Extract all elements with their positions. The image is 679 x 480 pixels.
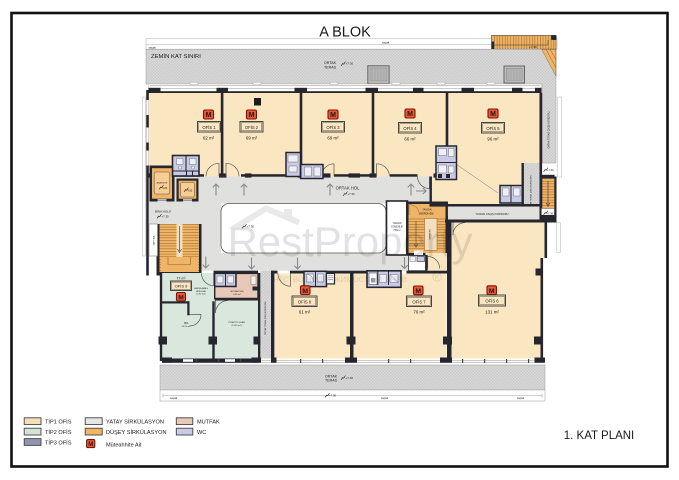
svg-text:MUTFAK: MUTFAK xyxy=(197,420,220,426)
svg-text:R: R xyxy=(435,275,440,282)
svg-text:OFİS 1: OFİS 1 xyxy=(202,125,216,130)
svg-text:+7.30: +7.30 xyxy=(346,62,354,66)
svg-text:66 m²: 66 m² xyxy=(404,137,416,142)
svg-text:M: M xyxy=(206,112,212,119)
svg-text:TERAS: TERAS xyxy=(325,379,338,383)
svg-text:OFİS 3: OFİS 3 xyxy=(326,125,340,130)
svg-text:ŞAFT BŞL.: ŞAFT BŞL. xyxy=(153,234,156,245)
svg-text:ORTAK TERAS ÇIKIŞ KORİDORU: ORTAK TERAS ÇIKIŞ KORİDORU xyxy=(530,175,533,209)
svg-text:ORTAK TERAS ÇIKIŞ KORİDORU: ORTAK TERAS ÇIKIŞ KORİDORU xyxy=(548,111,551,148)
svg-text:saçak: saçak xyxy=(170,396,178,400)
svg-text:ASANSÖR: ASANSÖR xyxy=(157,182,168,185)
svg-text:+7.30: +7.30 xyxy=(329,394,337,398)
svg-text:M: M xyxy=(302,288,308,295)
svg-text:M: M xyxy=(407,111,413,118)
svg-text:KARŞILAMA &: KARŞILAMA & xyxy=(194,287,208,290)
svg-text:62 m²: 62 m² xyxy=(203,136,215,141)
svg-text:+7.30: +7.30 xyxy=(547,211,554,215)
svg-text:MUTFAK NİŞİ: MUTFAK NİŞİ xyxy=(230,290,243,293)
svg-text:+7.30: +7.30 xyxy=(346,376,354,380)
svg-text:saçak: saçak xyxy=(381,396,389,400)
svg-text:+7.30: +7.30 xyxy=(348,192,356,196)
svg-text:BEKLEME: BEKLEME xyxy=(196,291,206,293)
svg-text:(13.09 m2): (13.09 m2) xyxy=(231,325,241,327)
svg-text:+7.30: +7.30 xyxy=(162,215,170,219)
svg-text:1. KAT PLANI: 1. KAT PLANI xyxy=(564,430,635,442)
svg-text:M: M xyxy=(489,288,495,295)
svg-text:+7.30: +7.30 xyxy=(529,45,537,49)
svg-text:OFİS 4: OFİS 4 xyxy=(403,126,417,131)
svg-text:(5.60 m2): (5.60 m2) xyxy=(197,294,206,296)
svg-text:24.23 m2: 24.23 m2 xyxy=(182,326,192,328)
svg-text:M: M xyxy=(490,111,496,118)
svg-text:96 m²: 96 m² xyxy=(487,137,499,142)
svg-text:OFİS 7: OFİS 7 xyxy=(412,299,426,304)
svg-text:SPA: SPA xyxy=(184,322,189,325)
svg-text:TİP1 OFİS: TİP1 OFİS xyxy=(45,419,72,426)
svg-text:WC: WC xyxy=(197,430,206,436)
svg-text:MERDİVENİ: MERDİVENİ xyxy=(420,213,434,216)
svg-text:TERAS: TERAS xyxy=(324,65,337,69)
svg-text:TİP3 OFİS: TİP3 OFİS xyxy=(45,439,72,446)
svg-text:OFİS 6: OFİS 6 xyxy=(485,299,499,304)
svg-text:4.80: 4.80 xyxy=(188,189,193,192)
svg-text:saçak: saçak xyxy=(382,41,390,45)
svg-text:+7.30: +7.30 xyxy=(547,168,554,172)
svg-text:OFİS 5: OFİS 5 xyxy=(486,126,500,131)
svg-text:M: M xyxy=(88,442,93,448)
svg-text:OFİS 9: OFİS 9 xyxy=(175,284,188,289)
svg-text:4.80: 4.80 xyxy=(163,187,168,190)
svg-text:OFİS 2: OFİS 2 xyxy=(245,125,259,130)
svg-text:ORTAK TERAS ÇIKIŞ KORİDORU: ORTAK TERAS ÇIKIŞ KORİDORU xyxy=(264,301,267,335)
svg-text:saçak: saçak xyxy=(149,45,157,49)
svg-text:61 m²: 61 m² xyxy=(299,310,311,315)
svg-text:ORTAK HOL: ORTAK HOL xyxy=(336,186,360,191)
svg-text:76 m²: 76 m² xyxy=(413,310,425,315)
svg-text:YÖNETİCİ ODASI: YÖNETİCİ ODASI xyxy=(228,321,245,324)
svg-text:4.39 m2: 4.39 m2 xyxy=(233,294,241,296)
svg-text:131 m²: 131 m² xyxy=(485,310,499,315)
svg-text:69 m²: 69 m² xyxy=(327,136,339,141)
svg-text:M: M xyxy=(249,112,255,119)
svg-text:A BLOK: A BLOK xyxy=(319,25,371,41)
svg-text:M: M xyxy=(415,288,421,295)
svg-text:77 m²: 77 m² xyxy=(176,276,186,280)
svg-text:BİNA HOLÜ: BİNA HOLÜ xyxy=(155,209,171,214)
svg-text:ZEMİN KAT SINIRI: ZEMİN KAT SINIRI xyxy=(151,53,201,60)
svg-text:DÜŞEY SİRKÜLASYON: DÜŞEY SİRKÜLASYON xyxy=(106,429,167,436)
svg-text:69 m²: 69 m² xyxy=(246,136,258,141)
svg-text:Müteahhite Ait: Müteahhite Ait xyxy=(106,442,142,448)
svg-text:нтство недвижимости и инве: нтство недвижимости и инве xyxy=(273,274,407,285)
svg-text:YANGIN: YANGIN xyxy=(422,209,432,212)
svg-text:M: M xyxy=(330,112,336,119)
svg-text:saçak: saçak xyxy=(517,396,525,400)
svg-text:TİP2 OFİS: TİP2 OFİS xyxy=(45,429,72,436)
svg-text:YATAY SİRKÜLASYON: YATAY SİRKÜLASYON xyxy=(106,419,164,426)
svg-text:M: M xyxy=(178,294,184,301)
svg-text:OFİS 8: OFİS 8 xyxy=(298,299,312,304)
svg-text:RestProperty: RestProperty xyxy=(227,218,472,265)
